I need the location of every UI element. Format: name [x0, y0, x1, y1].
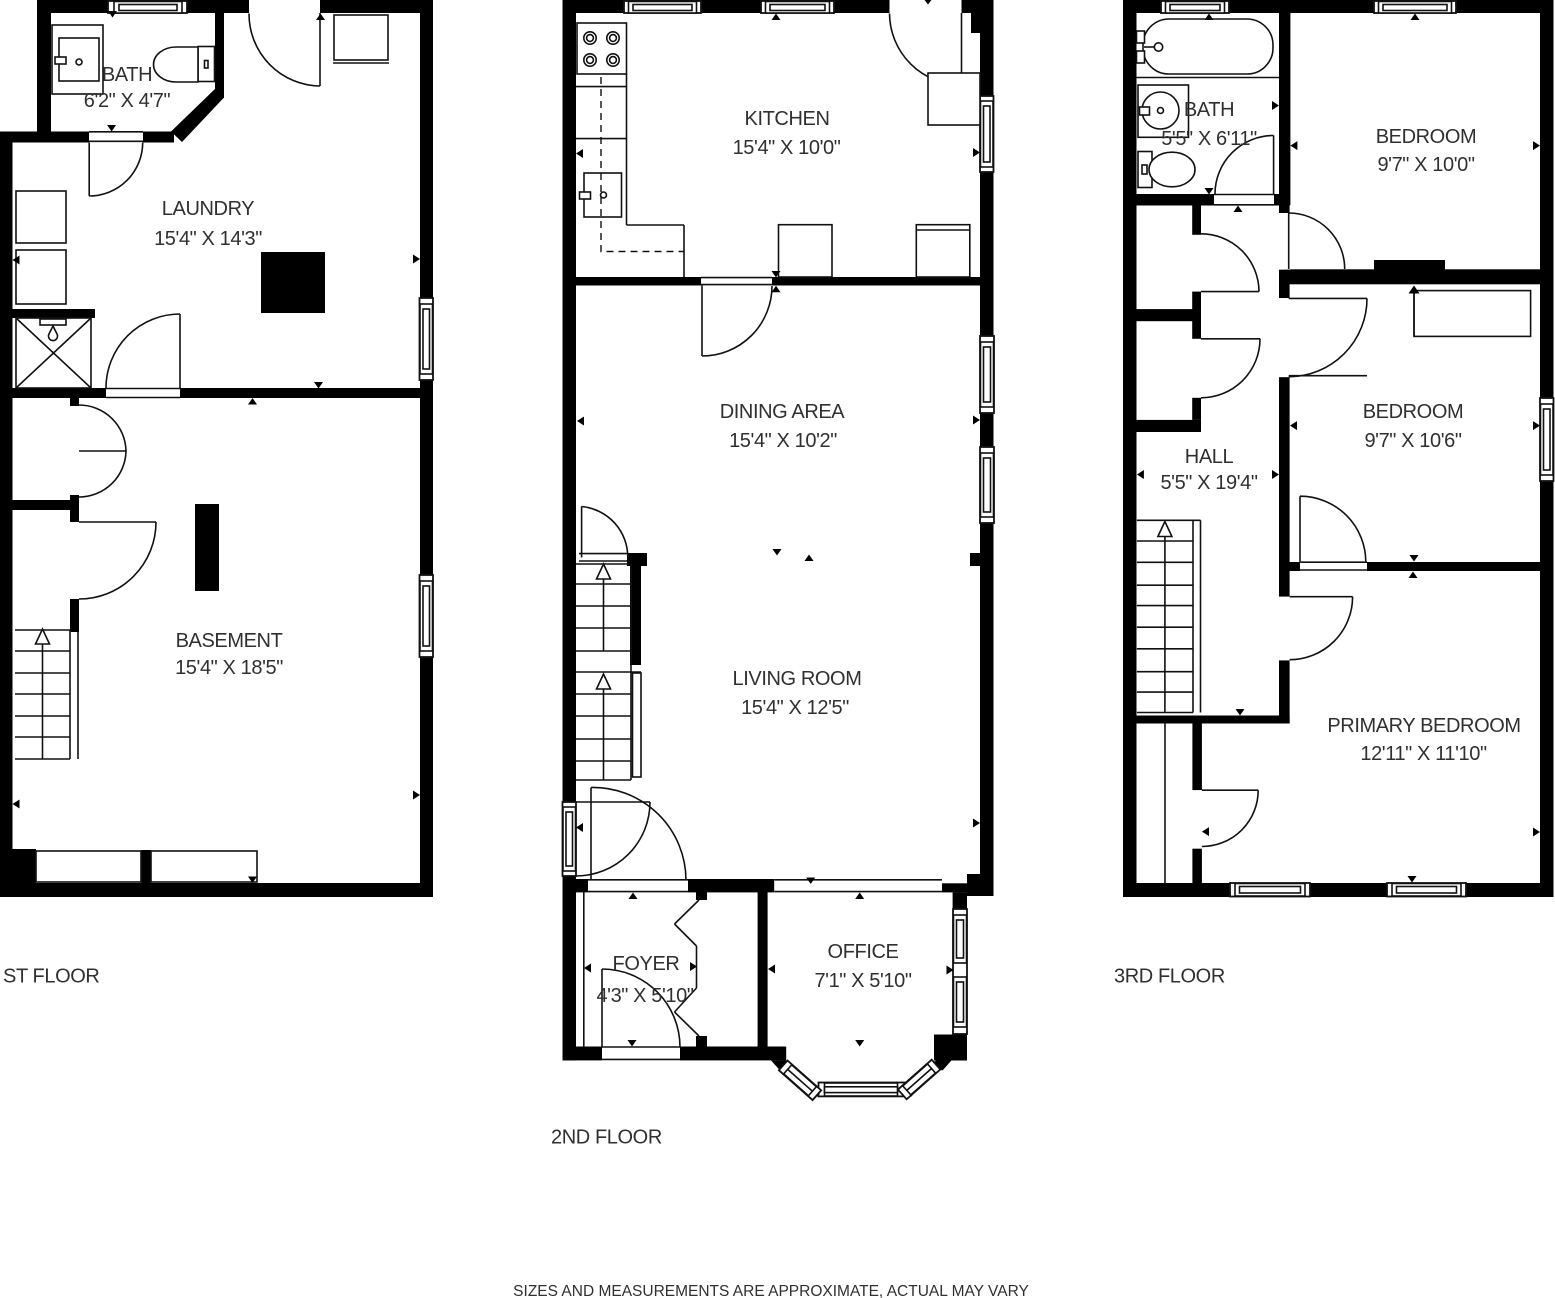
- svg-text:LIVING ROOM: LIVING ROOM: [733, 668, 862, 690]
- svg-text:PRIMARY BEDROOM: PRIMARY BEDROOM: [1327, 715, 1520, 737]
- svg-text:LAUNDRY: LAUNDRY: [162, 198, 254, 220]
- svg-text:2ND FLOOR: 2ND FLOOR: [551, 1127, 662, 1149]
- svg-text:5'5" X 6'11": 5'5" X 6'11": [1161, 128, 1257, 150]
- svg-text:15'4" X 10'2": 15'4" X 10'2": [729, 430, 837, 452]
- svg-text:7'1" X 5'10": 7'1" X 5'10": [814, 970, 911, 992]
- svg-text:BATH: BATH: [102, 64, 152, 86]
- svg-text:3RD FLOOR: 3RD FLOOR: [1114, 966, 1225, 988]
- svg-text:FOYER: FOYER: [613, 953, 680, 975]
- svg-text:9'7" X 10'0": 9'7" X 10'0": [1377, 154, 1474, 176]
- svg-text:DINING AREA: DINING AREA: [720, 401, 846, 423]
- svg-text:KITCHEN: KITCHEN: [745, 108, 830, 130]
- svg-text:BATH: BATH: [1184, 99, 1234, 121]
- svg-text:5'5" X 19'4": 5'5" X 19'4": [1160, 472, 1257, 494]
- svg-text:9'7" X 10'6": 9'7" X 10'6": [1364, 430, 1461, 452]
- svg-text:SIZES AND MEASUREMENTS ARE APP: SIZES AND MEASUREMENTS ARE APPROXIMATE, …: [513, 1283, 1029, 1298]
- svg-text:OFFICE: OFFICE: [828, 941, 899, 963]
- svg-text:BASEMENT: BASEMENT: [176, 630, 283, 652]
- svg-text:BEDROOM: BEDROOM: [1376, 126, 1477, 148]
- svg-text:6'2" X 4'7": 6'2" X 4'7": [84, 90, 171, 112]
- svg-text:12'11" X 11'10": 12'11" X 11'10": [1360, 743, 1487, 765]
- svg-text:HALL: HALL: [1185, 446, 1234, 468]
- svg-text:15'4" X 14'3": 15'4" X 14'3": [154, 228, 262, 250]
- svg-text:ST FLOOR: ST FLOOR: [3, 966, 99, 988]
- svg-text:15'4" X 18'5": 15'4" X 18'5": [175, 657, 283, 679]
- svg-text:15'4" X 10'0": 15'4" X 10'0": [733, 137, 841, 159]
- svg-text:4'3" X 5'10": 4'3" X 5'10": [596, 985, 693, 1007]
- svg-text:BEDROOM: BEDROOM: [1363, 401, 1464, 423]
- svg-text:15'4" X 12'5": 15'4" X 12'5": [741, 697, 849, 719]
